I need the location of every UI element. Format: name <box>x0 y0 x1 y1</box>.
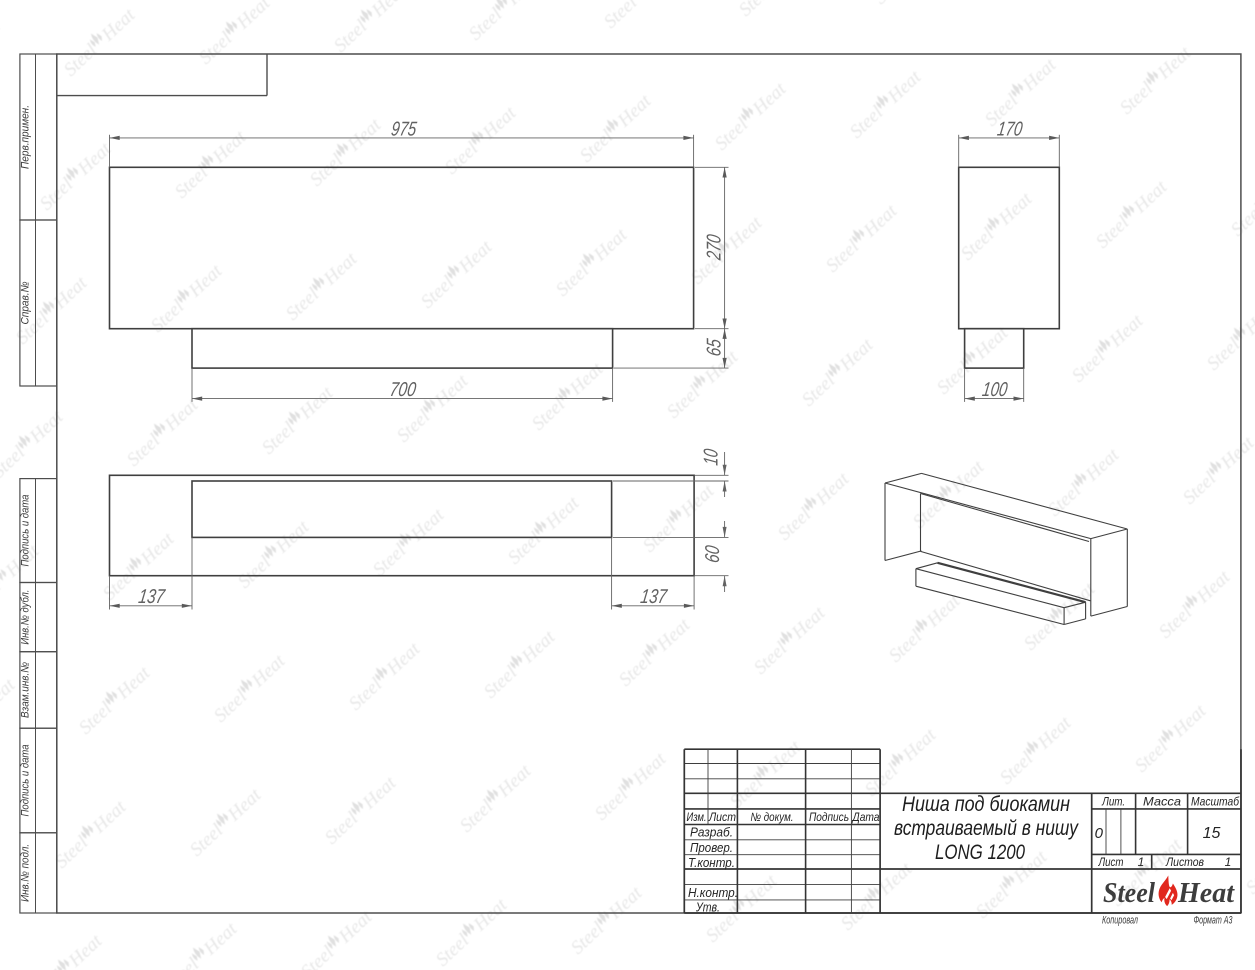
svg-text:975: 975 <box>390 118 419 140</box>
svg-text:Инв.№ подл.: Инв.№ подл. <box>20 844 32 902</box>
svg-text:1: 1 <box>1138 855 1145 869</box>
svg-text:137: 137 <box>137 586 167 608</box>
svg-text:Масса: Масса <box>1143 795 1181 809</box>
svg-text:Листов: Листов <box>1165 855 1204 869</box>
svg-text:Т.контр.: Т.контр. <box>688 856 735 870</box>
svg-text:встраиваемый в нишу: встраиваемый в нишу <box>894 817 1079 840</box>
svg-text:100: 100 <box>981 379 1009 401</box>
svg-text:LONG 1200: LONG 1200 <box>935 841 1025 864</box>
svg-text:Дата: Дата <box>851 810 880 824</box>
svg-text:Heat: Heat <box>1177 877 1235 909</box>
svg-text:Лист: Лист <box>1098 855 1124 869</box>
svg-text:Лит.: Лит. <box>1101 795 1125 809</box>
svg-text:Подпись и дата: Подпись и дата <box>20 495 32 567</box>
svg-text:Подпись и дата: Подпись и дата <box>20 745 32 817</box>
svg-text:Провер.: Провер. <box>690 841 733 855</box>
svg-text:Формат А3: Формат А3 <box>1194 915 1234 927</box>
svg-text:170: 170 <box>996 118 1024 140</box>
svg-text:Н.контр.: Н.контр. <box>688 886 738 900</box>
svg-text:Лист: Лист <box>708 810 736 824</box>
svg-text:270: 270 <box>704 233 726 262</box>
svg-text:Разраб.: Разраб. <box>690 826 733 840</box>
svg-text:700: 700 <box>388 379 417 401</box>
svg-text:Копировал: Копировал <box>1102 915 1138 927</box>
svg-text:10: 10 <box>701 448 723 467</box>
svg-text:137: 137 <box>639 586 669 608</box>
svg-text:Масштаб: Масштаб <box>1191 795 1240 809</box>
svg-text:Инв.№ дубл.: Инв.№ дубл. <box>20 590 32 645</box>
svg-text:Взам.инв.№: Взам.инв.№ <box>20 662 32 718</box>
svg-text:15: 15 <box>1203 825 1221 842</box>
svg-text:Изм.: Изм. <box>687 810 707 824</box>
svg-text:Ниша под биокамин: Ниша под биокамин <box>902 793 1070 816</box>
svg-text:Справ.№: Справ.№ <box>20 281 32 324</box>
svg-text:Подпись: Подпись <box>809 810 849 824</box>
svg-text:Утв.: Утв. <box>695 900 720 914</box>
svg-text:Перв.примен.: Перв.примен. <box>20 105 32 169</box>
svg-text:№ докум.: № докум. <box>751 810 794 824</box>
svg-text:1: 1 <box>1225 855 1232 869</box>
svg-text:0: 0 <box>1095 825 1104 842</box>
svg-text:Steel: Steel <box>1103 877 1156 909</box>
svg-text:60: 60 <box>702 544 724 564</box>
